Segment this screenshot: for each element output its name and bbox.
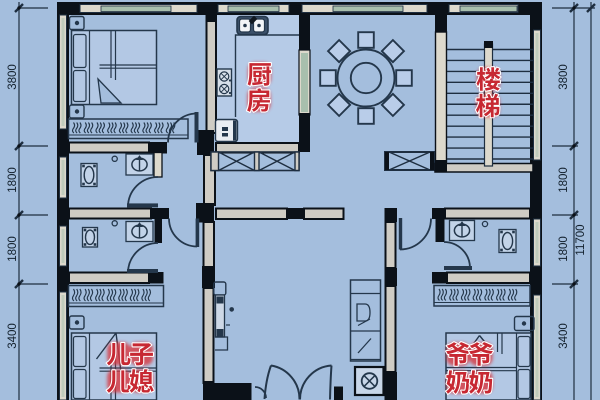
svg-text:1800: 1800 xyxy=(558,236,570,262)
svg-text:1800: 1800 xyxy=(7,236,19,262)
svg-text:1800: 1800 xyxy=(7,167,19,193)
svg-text:3400: 3400 xyxy=(7,323,19,349)
svg-text:3400: 3400 xyxy=(558,323,570,349)
svg-text:11700: 11700 xyxy=(575,224,587,255)
svg-text:3800: 3800 xyxy=(558,64,570,90)
svg-text:1800: 1800 xyxy=(558,167,570,193)
svg-text:3800: 3800 xyxy=(7,64,19,90)
